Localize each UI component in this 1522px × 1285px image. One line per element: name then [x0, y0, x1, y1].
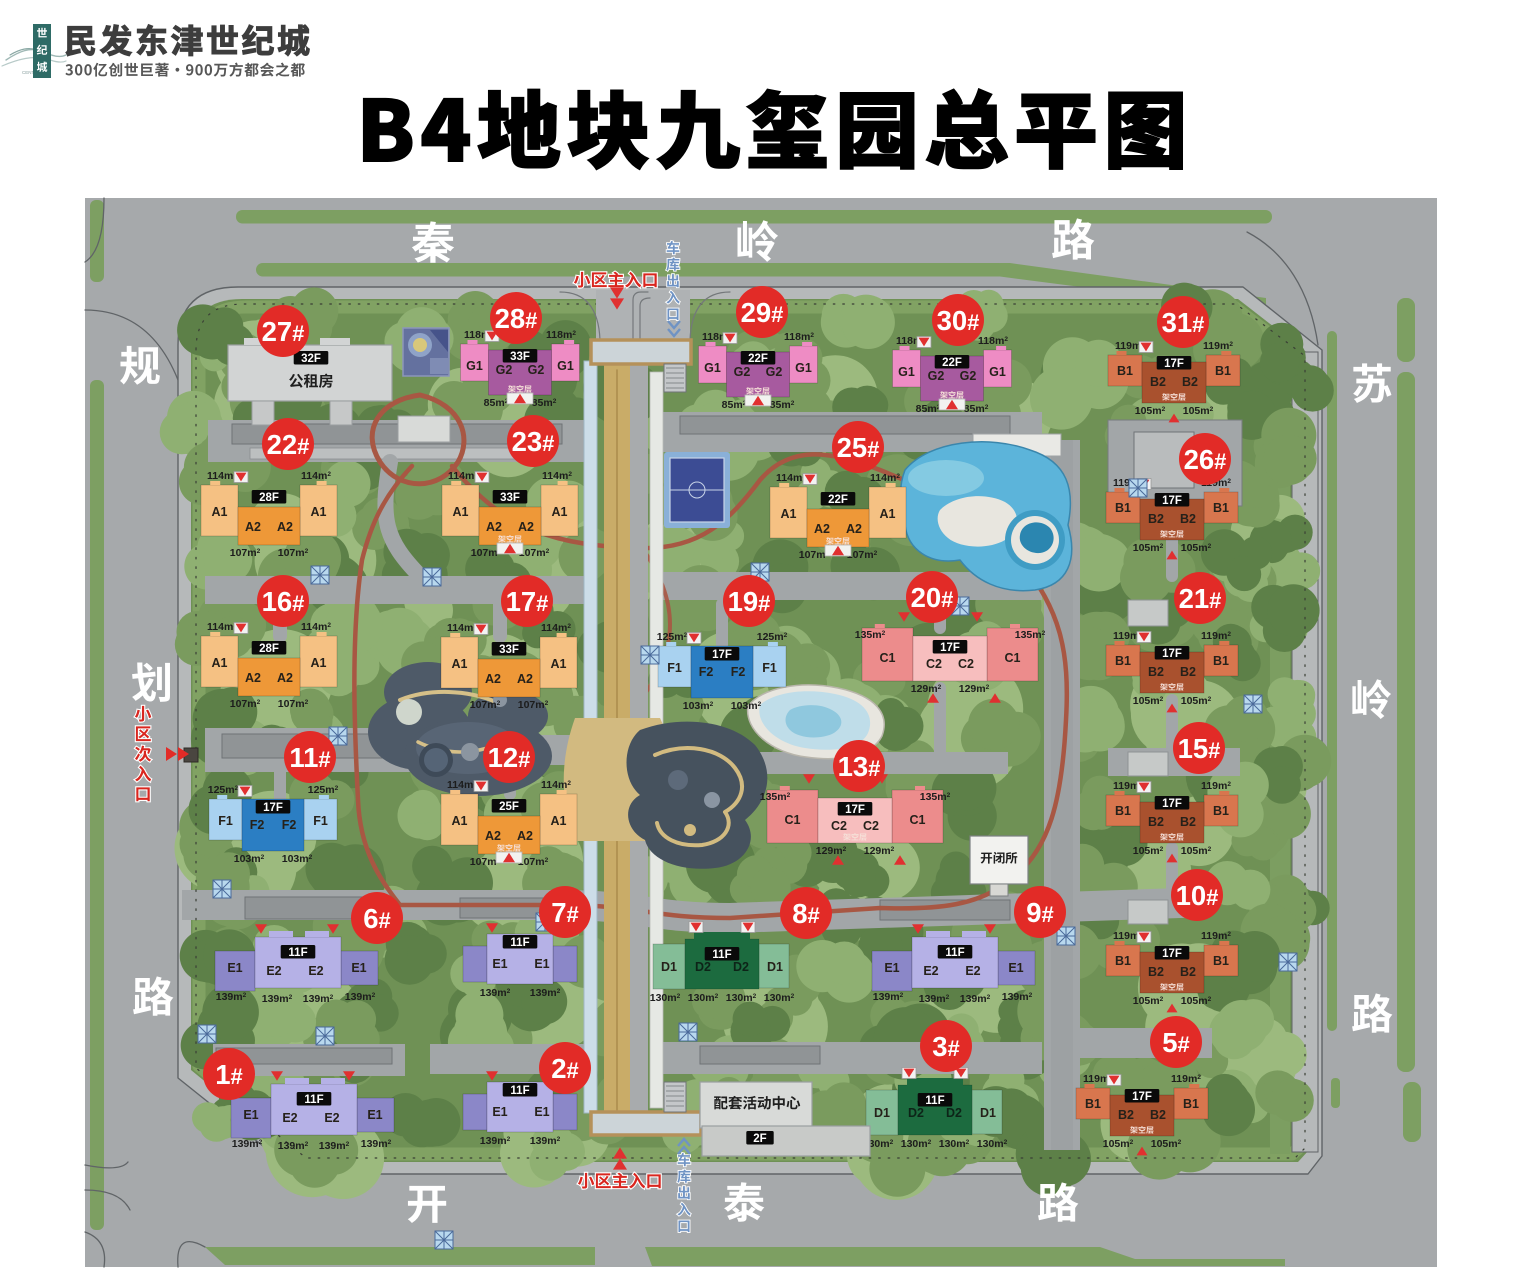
- svg-text:16#: 16#: [262, 586, 305, 617]
- svg-text:17F: 17F: [712, 649, 732, 661]
- svg-text:C2: C2: [958, 657, 974, 671]
- svg-text:E1: E1: [243, 1108, 258, 1122]
- svg-text:129m2: 129m2: [864, 845, 895, 857]
- svg-text:21#: 21#: [1179, 583, 1222, 614]
- svg-text:E2: E2: [308, 964, 323, 978]
- svg-text:B2: B2: [1150, 375, 1166, 389]
- svg-text:33F: 33F: [510, 351, 530, 363]
- svg-text:129m2: 129m2: [816, 845, 847, 857]
- svg-text:139m2: 139m2: [216, 991, 247, 1003]
- svg-text:125m2: 125m2: [757, 631, 788, 643]
- svg-text:30#: 30#: [937, 305, 980, 336]
- svg-text:139m2: 139m2: [873, 991, 904, 1003]
- svg-text:E2: E2: [965, 964, 980, 978]
- svg-text:G2: G2: [928, 369, 945, 383]
- svg-text:125m2: 125m2: [208, 784, 239, 796]
- svg-text:7#: 7#: [551, 897, 579, 928]
- svg-text:B1: B1: [1213, 501, 1229, 515]
- svg-text:25F: 25F: [499, 801, 519, 813]
- svg-text:114m2: 114m2: [447, 622, 477, 634]
- svg-text:B1: B1: [1213, 954, 1229, 968]
- svg-text:139m2: 139m2: [278, 1140, 309, 1152]
- svg-text:17F: 17F: [1132, 1091, 1152, 1103]
- svg-text:B1: B1: [1115, 954, 1131, 968]
- svg-text:11F: 11F: [510, 1085, 529, 1097]
- svg-text:B1: B1: [1183, 1097, 1199, 1111]
- svg-text:118m2: 118m2: [546, 329, 576, 341]
- svg-text:13#: 13#: [838, 751, 881, 782]
- svg-text:A1: A1: [452, 657, 468, 671]
- svg-text:11F: 11F: [288, 947, 307, 959]
- svg-text:5#: 5#: [1162, 1027, 1190, 1058]
- svg-text:107m2: 107m2: [230, 698, 261, 710]
- svg-text:2F: 2F: [753, 1133, 766, 1145]
- svg-text:125m2: 125m2: [657, 631, 688, 643]
- svg-text:A1: A1: [212, 656, 228, 670]
- svg-text:A2: A2: [277, 671, 293, 685]
- svg-text:11F: 11F: [712, 949, 731, 961]
- svg-text:22F: 22F: [748, 353, 768, 365]
- svg-text:139m2: 139m2: [530, 1135, 561, 1147]
- svg-text:B1: B1: [1115, 804, 1131, 818]
- svg-text:17F: 17F: [1162, 948, 1182, 960]
- svg-text:F1: F1: [762, 661, 777, 675]
- svg-text:C1: C1: [880, 651, 896, 665]
- svg-text:F2: F2: [731, 665, 746, 679]
- svg-text:C2: C2: [831, 819, 847, 833]
- svg-text:2#: 2#: [551, 1053, 579, 1084]
- svg-text:118m2: 118m2: [784, 331, 814, 343]
- svg-text:105m2: 105m2: [1183, 405, 1214, 417]
- svg-text:17F: 17F: [940, 642, 960, 654]
- svg-text:A1: A1: [452, 814, 468, 828]
- svg-text:114m2: 114m2: [207, 470, 237, 482]
- svg-text:17F: 17F: [1162, 798, 1182, 810]
- svg-text:114m2: 114m2: [541, 779, 571, 791]
- svg-text:E1: E1: [884, 961, 899, 975]
- svg-text:135m2: 135m2: [1015, 629, 1046, 641]
- svg-text:A1: A1: [212, 505, 228, 519]
- svg-text:A1: A1: [552, 505, 568, 519]
- svg-text:19#: 19#: [728, 586, 771, 617]
- svg-text:3#: 3#: [932, 1031, 960, 1062]
- svg-text:B2: B2: [1180, 512, 1196, 526]
- svg-text:B2: B2: [1182, 375, 1198, 389]
- svg-text:G1: G1: [557, 359, 574, 373]
- svg-text:114m2: 114m2: [542, 470, 572, 482]
- svg-text:139m2: 139m2: [232, 1138, 263, 1150]
- svg-text:C1: C1: [1005, 651, 1021, 665]
- svg-text:B2: B2: [1148, 665, 1164, 679]
- svg-text:103m2: 103m2: [731, 700, 762, 712]
- svg-text:11#: 11#: [289, 742, 330, 773]
- svg-text:D1: D1: [874, 1106, 890, 1120]
- svg-text:105m2: 105m2: [1103, 1138, 1134, 1150]
- svg-text:105m2: 105m2: [1133, 995, 1164, 1007]
- svg-text:118m2: 118m2: [978, 335, 1008, 347]
- svg-text:A1: A1: [453, 505, 469, 519]
- svg-text:B2: B2: [1118, 1108, 1134, 1122]
- svg-text:114m2: 114m2: [301, 621, 331, 633]
- svg-text:B2: B2: [1180, 815, 1196, 829]
- svg-text:B1: B1: [1215, 364, 1231, 378]
- svg-text:C1: C1: [910, 813, 926, 827]
- svg-text:G1: G1: [466, 359, 483, 373]
- svg-text:33F: 33F: [500, 492, 520, 504]
- svg-text:130m2: 130m2: [977, 1138, 1008, 1150]
- svg-text:A2: A2: [517, 672, 533, 686]
- svg-text:9#: 9#: [1026, 897, 1054, 928]
- svg-text:17#: 17#: [506, 586, 549, 617]
- svg-text:33F: 33F: [499, 644, 519, 656]
- svg-text:B1: B1: [1117, 364, 1133, 378]
- svg-text:119m2: 119m2: [1203, 340, 1233, 352]
- svg-text:F2: F2: [250, 818, 265, 832]
- svg-text:E2: E2: [282, 1111, 297, 1125]
- svg-text:27#: 27#: [262, 316, 305, 347]
- svg-text:139m2: 139m2: [1002, 991, 1033, 1003]
- svg-text:119m2: 119m2: [1201, 780, 1231, 792]
- svg-text:11F: 11F: [304, 1094, 323, 1106]
- svg-text:A2: A2: [277, 520, 293, 534]
- svg-text:139m2: 139m2: [960, 993, 991, 1005]
- svg-text:139m2: 139m2: [361, 1138, 392, 1150]
- svg-text:17F: 17F: [1162, 648, 1182, 660]
- svg-text:32F: 32F: [301, 353, 321, 365]
- svg-text:17F: 17F: [845, 804, 865, 816]
- svg-text:G1: G1: [989, 365, 1006, 379]
- svg-text:D2: D2: [733, 960, 749, 974]
- svg-text:B1: B1: [1213, 654, 1229, 668]
- svg-text:139m2: 139m2: [919, 993, 950, 1005]
- svg-text:139m2: 139m2: [303, 993, 334, 1005]
- svg-text:D1: D1: [767, 960, 783, 974]
- svg-text:135m2: 135m2: [760, 791, 791, 803]
- svg-text:31#: 31#: [1162, 307, 1205, 338]
- svg-text:G2: G2: [766, 365, 783, 379]
- svg-text:G2: G2: [734, 365, 751, 379]
- svg-text:107m2: 107m2: [278, 698, 309, 710]
- svg-text:28F: 28F: [259, 643, 279, 655]
- svg-text:F1: F1: [667, 661, 682, 675]
- svg-text:C2: C2: [926, 657, 942, 671]
- svg-text:E1: E1: [351, 961, 366, 975]
- svg-text:29#: 29#: [741, 297, 784, 328]
- svg-text:11F: 11F: [925, 1095, 944, 1107]
- svg-text:125m2: 125m2: [308, 784, 339, 796]
- svg-text:130m2: 130m2: [650, 992, 681, 1004]
- svg-text:103m2: 103m2: [234, 853, 265, 865]
- svg-text:F2: F2: [282, 818, 297, 832]
- svg-text:A1: A1: [551, 657, 567, 671]
- svg-text:139m2: 139m2: [480, 987, 511, 999]
- svg-text:F1: F1: [313, 814, 328, 828]
- svg-text:A2: A2: [846, 522, 862, 536]
- svg-text:A1: A1: [880, 507, 896, 521]
- svg-text:20#: 20#: [911, 582, 954, 613]
- svg-text:139m2: 139m2: [262, 993, 293, 1005]
- svg-text:G1: G1: [898, 365, 915, 379]
- svg-text:28#: 28#: [495, 303, 538, 334]
- svg-text:22#: 22#: [267, 429, 310, 460]
- svg-text:135m2: 135m2: [855, 629, 886, 641]
- svg-text:119m2: 119m2: [1201, 930, 1231, 942]
- svg-text:105m2: 105m2: [1133, 542, 1164, 554]
- svg-text:119m2: 119m2: [1171, 1073, 1201, 1085]
- svg-text:11F: 11F: [510, 937, 529, 949]
- svg-text:B2: B2: [1180, 965, 1196, 979]
- svg-text:12#: 12#: [488, 742, 531, 773]
- svg-text:D2: D2: [695, 960, 711, 974]
- svg-text:E1: E1: [534, 957, 549, 971]
- svg-text:22F: 22F: [942, 357, 962, 369]
- svg-text:E1: E1: [534, 1105, 549, 1119]
- svg-text:130m2: 130m2: [726, 992, 757, 1004]
- svg-text:114m2: 114m2: [870, 472, 900, 484]
- svg-text:107m2: 107m2: [230, 547, 261, 559]
- svg-text:B1: B1: [1115, 501, 1131, 515]
- svg-text:G2: G2: [528, 363, 545, 377]
- svg-text:129m2: 129m2: [959, 683, 990, 695]
- svg-text:105m2: 105m2: [1181, 695, 1212, 707]
- svg-text:E2: E2: [266, 964, 281, 978]
- svg-text:105m2: 105m2: [1151, 1138, 1182, 1150]
- svg-text:A1: A1: [551, 814, 567, 828]
- svg-text:D1: D1: [661, 960, 677, 974]
- svg-text:107m2: 107m2: [518, 699, 549, 711]
- svg-text:A2: A2: [486, 520, 502, 534]
- svg-text:26#: 26#: [1184, 444, 1227, 475]
- svg-text:A2: A2: [485, 829, 501, 843]
- svg-text:105m2: 105m2: [1133, 695, 1164, 707]
- svg-text:A2: A2: [245, 520, 261, 534]
- svg-text:139m2: 139m2: [319, 1140, 350, 1152]
- svg-text:11F: 11F: [945, 947, 964, 959]
- svg-text:28F: 28F: [259, 492, 279, 504]
- svg-text:B2: B2: [1148, 965, 1164, 979]
- svg-text:114m2: 114m2: [776, 472, 806, 484]
- svg-text:22F: 22F: [828, 494, 848, 506]
- svg-text:A1: A1: [311, 656, 327, 670]
- svg-text:A1: A1: [311, 505, 327, 519]
- svg-text:10#: 10#: [1176, 880, 1219, 911]
- svg-text:105m2: 105m2: [1133, 845, 1164, 857]
- svg-text:114m2: 114m2: [448, 470, 478, 482]
- svg-text:105m2: 105m2: [1181, 995, 1212, 1007]
- svg-text:A2: A2: [518, 520, 534, 534]
- svg-text:F1: F1: [218, 814, 233, 828]
- svg-text:E1: E1: [492, 1105, 507, 1119]
- svg-text:17F: 17F: [1162, 495, 1182, 507]
- svg-text:C1: C1: [785, 813, 801, 827]
- svg-text:B2: B2: [1148, 815, 1164, 829]
- svg-text:130m2: 130m2: [901, 1138, 932, 1150]
- svg-text:G1: G1: [704, 361, 721, 375]
- svg-text:8#: 8#: [792, 898, 820, 929]
- svg-text:114m2: 114m2: [301, 470, 331, 482]
- svg-text:105m2: 105m2: [1135, 405, 1166, 417]
- svg-text:130m2: 130m2: [939, 1138, 970, 1150]
- svg-text:B2: B2: [1148, 512, 1164, 526]
- svg-text:114m2: 114m2: [207, 621, 237, 633]
- svg-text:103m2: 103m2: [683, 700, 714, 712]
- svg-text:139m2: 139m2: [480, 1135, 511, 1147]
- svg-text:D2: D2: [946, 1106, 962, 1120]
- svg-text:103m2: 103m2: [282, 853, 313, 865]
- svg-text:E1: E1: [1008, 961, 1023, 975]
- svg-text:E1: E1: [492, 957, 507, 971]
- svg-text:139m2: 139m2: [345, 991, 376, 1003]
- svg-text:17F: 17F: [1164, 358, 1184, 370]
- svg-text:A1: A1: [781, 507, 797, 521]
- svg-text:B2: B2: [1180, 665, 1196, 679]
- svg-text:E2: E2: [923, 964, 938, 978]
- svg-text:D1: D1: [980, 1106, 996, 1120]
- svg-text:B1: B1: [1085, 1097, 1101, 1111]
- svg-text:D2: D2: [908, 1106, 924, 1120]
- svg-text:25#: 25#: [837, 432, 880, 463]
- svg-text:G1: G1: [795, 361, 812, 375]
- svg-text:6#: 6#: [363, 903, 391, 934]
- svg-text:C2: C2: [863, 819, 879, 833]
- svg-text:107m2: 107m2: [470, 699, 501, 711]
- svg-text:E2: E2: [324, 1111, 339, 1125]
- svg-text:130m2: 130m2: [688, 992, 719, 1004]
- svg-text:135m2: 135m2: [920, 791, 951, 803]
- svg-text:B1: B1: [1115, 654, 1131, 668]
- svg-text:E1: E1: [227, 961, 242, 975]
- svg-text:105m2: 105m2: [1181, 542, 1212, 554]
- svg-text:23#: 23#: [512, 426, 555, 457]
- svg-text:15#: 15#: [1178, 733, 1221, 764]
- svg-text:A2: A2: [245, 671, 261, 685]
- svg-text:107m2: 107m2: [278, 547, 309, 559]
- svg-text:G2: G2: [960, 369, 977, 383]
- svg-text:1#: 1#: [215, 1059, 243, 1090]
- svg-text:114m2: 114m2: [447, 779, 477, 791]
- svg-text:E1: E1: [367, 1108, 382, 1122]
- svg-text:119m2: 119m2: [1201, 630, 1231, 642]
- svg-text:129m2: 129m2: [911, 683, 942, 695]
- svg-text:105m2: 105m2: [1181, 845, 1212, 857]
- svg-text:G2: G2: [496, 363, 513, 377]
- svg-text:17F: 17F: [263, 802, 283, 814]
- svg-text:F2: F2: [699, 665, 714, 679]
- svg-text:B2: B2: [1150, 1108, 1166, 1122]
- svg-text:A2: A2: [517, 829, 533, 843]
- svg-text:139m2: 139m2: [530, 987, 561, 999]
- svg-text:130m2: 130m2: [764, 992, 795, 1004]
- svg-text:A2: A2: [485, 672, 501, 686]
- svg-text:B1: B1: [1213, 804, 1229, 818]
- svg-text:A2: A2: [814, 522, 830, 536]
- svg-text:114m2: 114m2: [541, 622, 571, 634]
